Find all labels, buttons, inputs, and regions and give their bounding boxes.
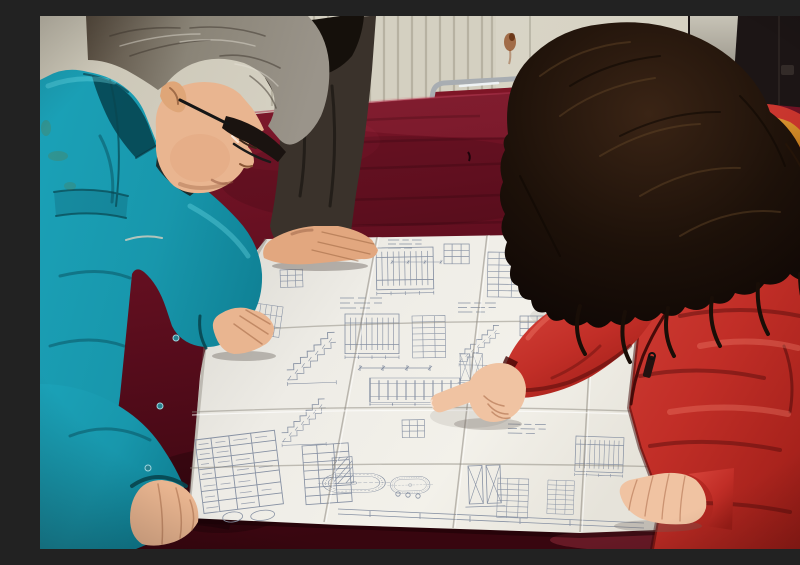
vignette bbox=[40, 16, 800, 549]
photo-scene: Photograph of three people leaning over … bbox=[40, 16, 800, 549]
photo-svg bbox=[40, 16, 800, 549]
